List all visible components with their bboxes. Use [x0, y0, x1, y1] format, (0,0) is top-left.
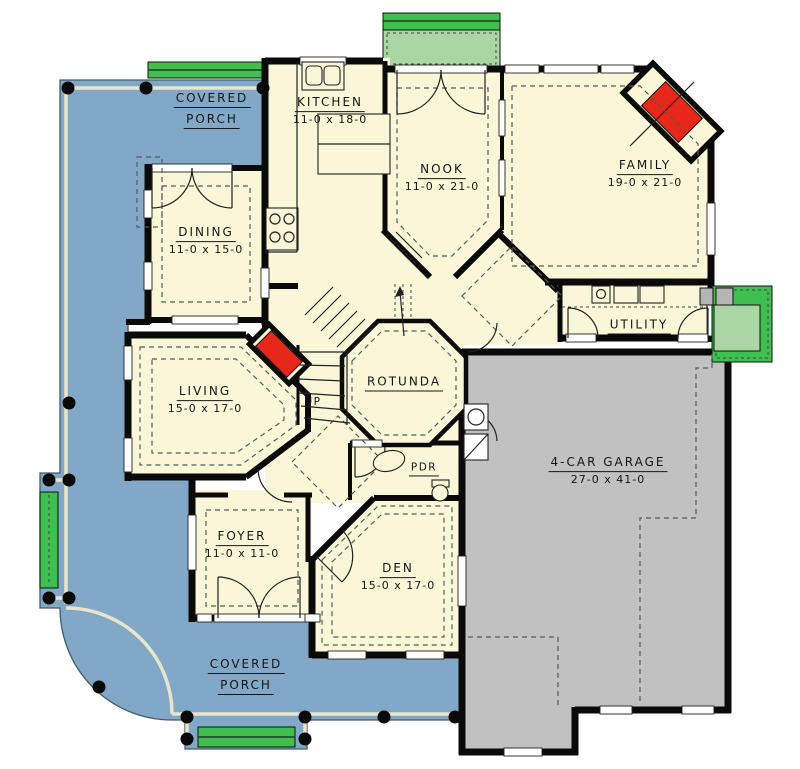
label-up: UP [302, 390, 323, 410]
label-den: DEN 15-0 x 17-0 [361, 557, 435, 593]
label-nook: NOOK 11-0 x 21-0 [405, 158, 479, 194]
label-covered-porch-top: COVERED PORCH [174, 87, 251, 129]
label-rotunda: ROTUNDA [365, 371, 443, 392]
label-dining: DINING 11-0 x 15-0 [169, 221, 243, 257]
label-pdr: PDR [409, 455, 439, 476]
washer-icon [614, 286, 638, 303]
floor-plan: COVERED PORCH KITCHEN 11-0 x 18-0 NOOK 1… [0, 0, 800, 769]
label-covered-porch-bottom: COVERED PORCH [208, 653, 285, 695]
label-garage: 4-CAR GARAGE 27-0 x 41-0 [549, 451, 668, 487]
label-utility: UTILITY [608, 314, 671, 335]
garage-area [462, 352, 728, 752]
utility-sink-icon [592, 286, 610, 303]
cooktop-icon [266, 208, 298, 250]
label-kitchen: KITCHEN 11-0 x 18-0 [293, 91, 367, 127]
dryer-icon [640, 286, 664, 303]
label-foyer: FOYER 11-0 x 11-0 [205, 525, 279, 561]
label-living: LIVING 15-0 x 17-0 [168, 380, 242, 416]
label-family: FAMILY 19-0 x 21-0 [608, 154, 682, 190]
